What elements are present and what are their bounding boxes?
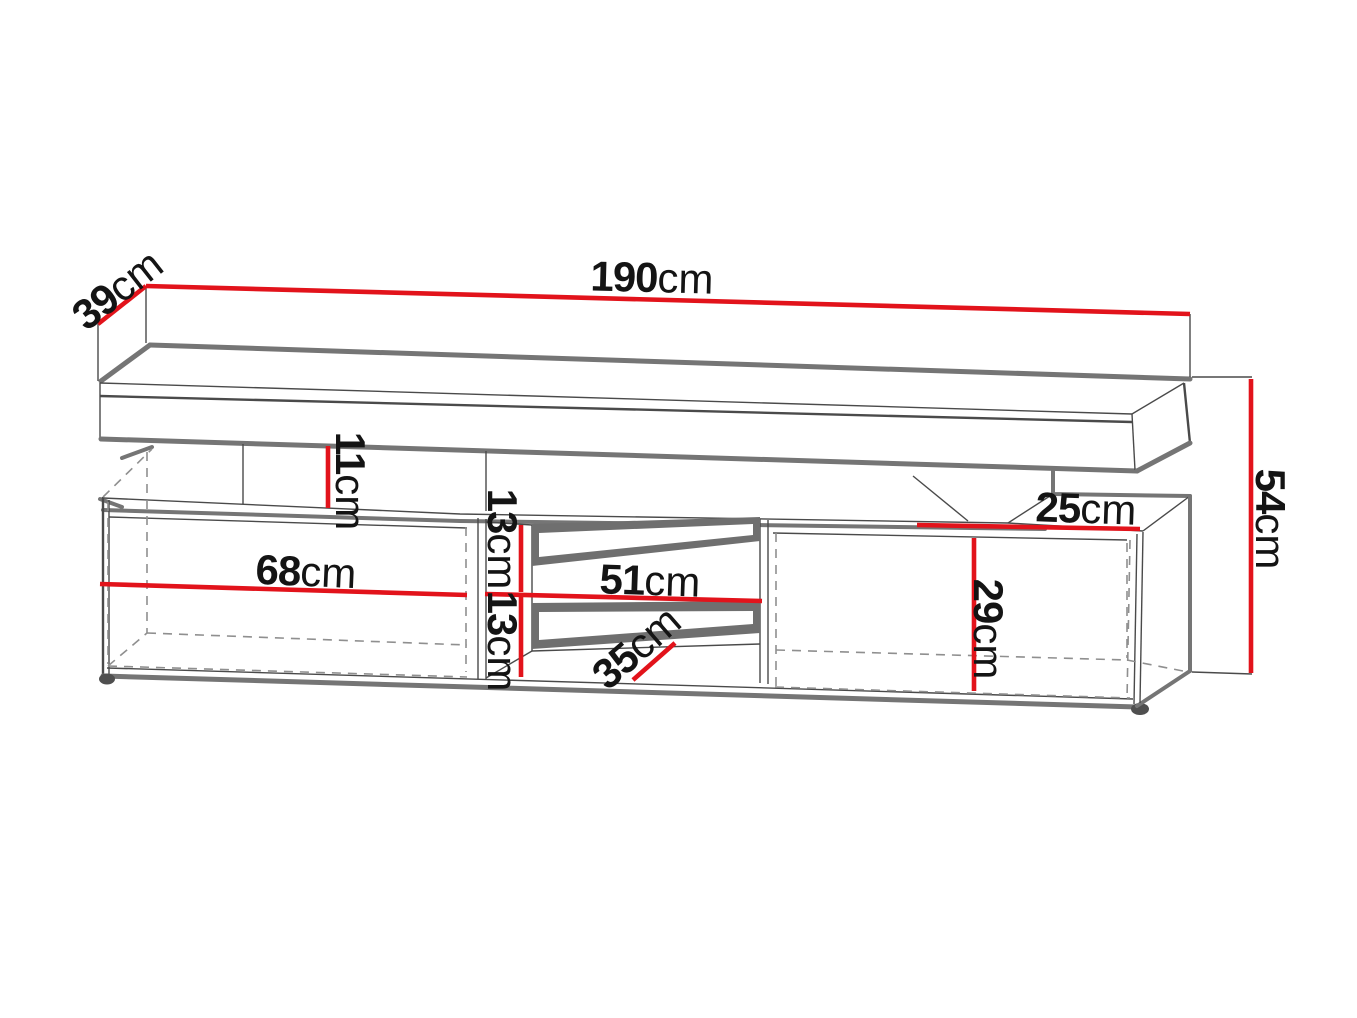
cabinet-front-right-edge [1134, 534, 1137, 704]
shelf-slab-right-back-edge [1184, 383, 1190, 443]
right-support-edge [913, 476, 968, 521]
cabinet-front-right-outer-edge [1140, 532, 1143, 703]
dim-label-niche-width: 51cm [599, 555, 701, 605]
dim-label-depth: 39cm [63, 239, 171, 338]
furniture-dimension-diagram: 190cm 39cm 11cm 54cm 25cm 68cm 13cm 13cm… [0, 0, 1357, 1018]
shelf-slab-right-front-edge [1132, 414, 1135, 470]
right-compartment-top-edge [773, 533, 1127, 540]
dim-label-niche-upper-height: 13cm [480, 489, 527, 590]
dim-label-total-height: 54cm [1248, 469, 1295, 570]
cabinet-top-front-edge [103, 498, 1008, 523]
right-floor-side-hidden-edge [1127, 660, 1188, 672]
height-extension-bottom [1192, 672, 1252, 674]
shelf-slab-bottom-edge [101, 439, 1137, 471]
shelf-slab-right-bottom-edge [1137, 443, 1190, 471]
cabinet-bottom-right-edge [1137, 671, 1190, 706]
dim-label-left-compartment-width: 68cm [255, 545, 358, 596]
top-shelf-unit [98, 286, 1190, 511]
page: { "diagram": { "title": "TV stand dimens… [0, 0, 1357, 1018]
dim-label-shelf-gap: 11cm [328, 432, 375, 530]
right-top-surface-right-edge [1143, 496, 1190, 531]
left-floor-side-hidden-edge [108, 633, 147, 666]
left-floor-back-hidden-edge [147, 633, 467, 645]
shelf-slab-right-top-edge [1132, 383, 1184, 414]
left-foot [99, 674, 115, 685]
dim-label-niche-lower-height: 13cm [480, 591, 527, 692]
diagram-canvas: 190cm 39cm 11cm 54cm 25cm 68cm 13cm 13cm… [0, 0, 1357, 1018]
back-rim-bottom-edge [150, 345, 1190, 379]
dim-label-total-width: 190cm [590, 252, 714, 302]
dim-label-right-top-depth: 25cm [1035, 483, 1137, 533]
dim-label-right-compartment-height: 29cm [966, 579, 1013, 680]
back-panel-bottom-left-edge [101, 345, 150, 381]
right-floor-back-hidden-edge [776, 650, 1127, 660]
